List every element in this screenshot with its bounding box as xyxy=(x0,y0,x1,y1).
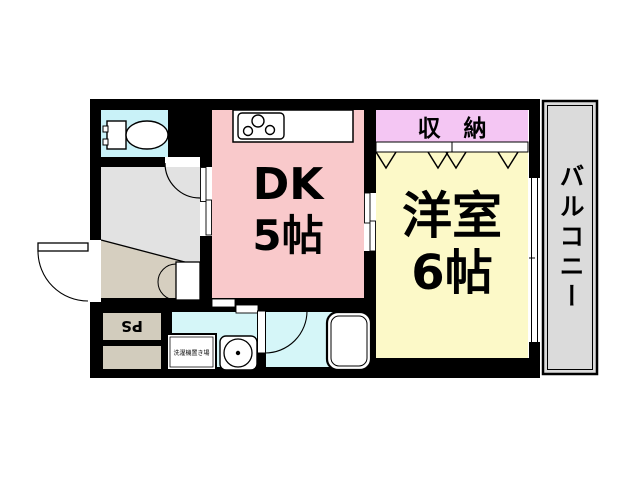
wall-right-lower xyxy=(529,342,540,378)
bathtub-icon xyxy=(327,312,371,370)
wall-top xyxy=(90,99,540,110)
toilet-tank-tab-2 xyxy=(103,139,108,145)
pipe-space-box xyxy=(103,313,161,340)
wall-bottom-right xyxy=(364,358,540,378)
pipe-space-box-lower xyxy=(103,346,161,369)
stove-burner-1 xyxy=(252,115,264,127)
floor-plan: DK 5帖 洋室 6帖 収 納 バルコニー PS 洗濯機置き場 xyxy=(0,0,640,480)
laundry-space-box xyxy=(167,334,216,370)
entrance-door-swing-icon xyxy=(38,251,88,301)
bath-door-leaf xyxy=(258,311,266,353)
entrance-door-opening xyxy=(90,240,101,302)
shoe-cabinet xyxy=(176,262,200,300)
toilet-icon xyxy=(107,121,126,149)
washer-drum-center xyxy=(236,351,240,355)
hall-dk-slide-panel-2 xyxy=(206,200,212,235)
wall-right-upper xyxy=(529,99,540,178)
stove-burner-2 xyxy=(244,127,253,136)
toilet-tank-tab-1 xyxy=(103,126,108,132)
toilet-bowl xyxy=(126,121,168,149)
wall-block-beside-toilet xyxy=(168,99,212,157)
dk-western-slide-panel-1 xyxy=(365,193,371,223)
wall-left-upper xyxy=(90,99,101,240)
entrance-door-leaf xyxy=(38,243,88,251)
window-icon xyxy=(529,178,540,342)
dk-washroom-slide-panel-1 xyxy=(212,299,235,307)
toilet-door-opening xyxy=(165,157,200,167)
hall-dk-slide-panel-1 xyxy=(201,168,207,202)
balcony xyxy=(543,101,597,374)
closet-room xyxy=(376,110,528,142)
dk-washroom-slide-panel-2 xyxy=(236,305,258,313)
floor-plan-drawing xyxy=(0,0,640,480)
dk-western-slide-panel-2 xyxy=(370,221,376,251)
wall-toilet-bottom xyxy=(90,157,165,167)
western-room xyxy=(376,142,528,358)
stove-burner-3 xyxy=(266,126,275,135)
